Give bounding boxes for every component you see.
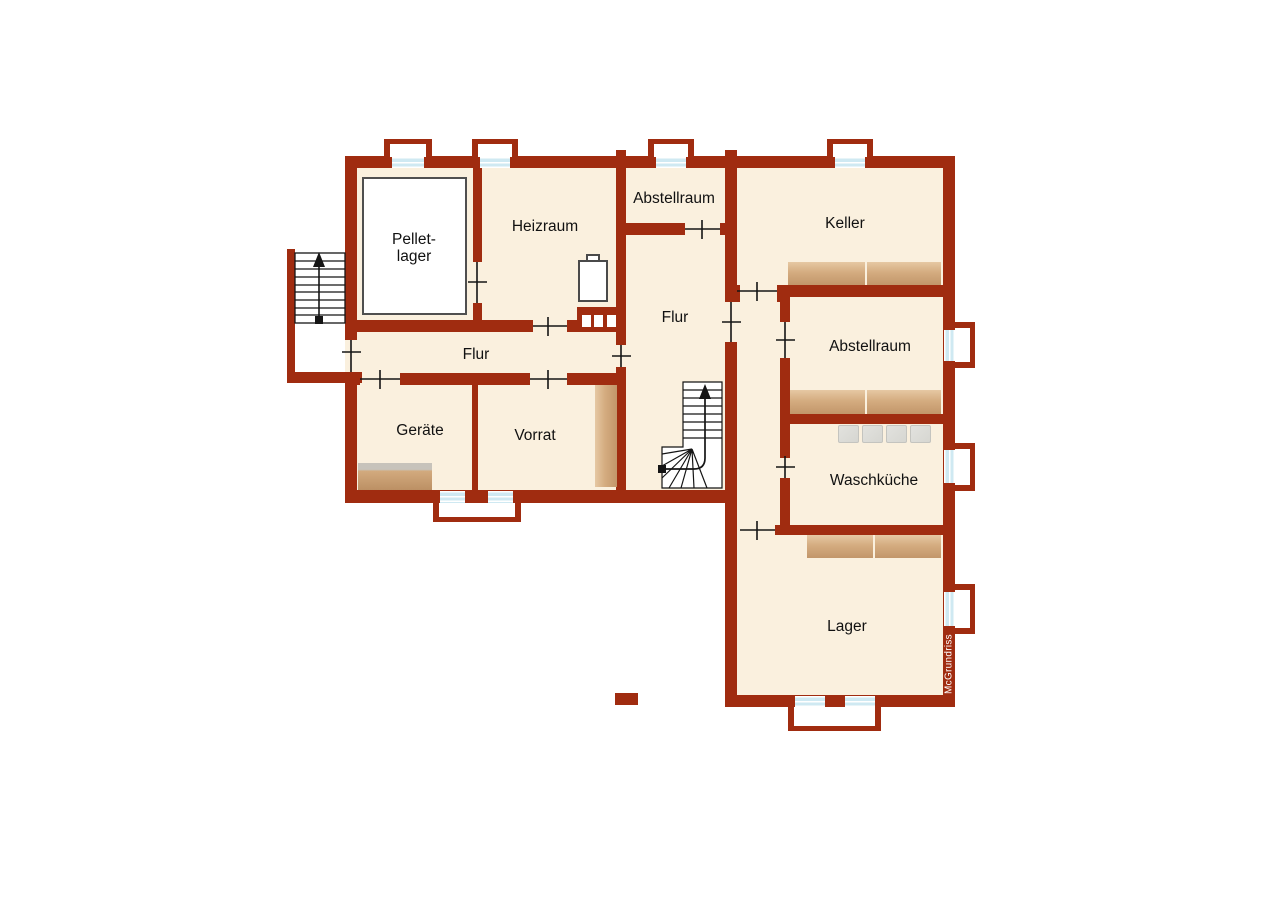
boiler	[578, 260, 608, 302]
window	[656, 157, 686, 168]
wall	[287, 249, 295, 383]
room-label-abstellraum-right: Abstellraum	[829, 338, 911, 356]
window-light-well	[648, 139, 694, 157]
window	[845, 696, 875, 707]
window	[440, 491, 465, 503]
window-light-well	[827, 139, 873, 157]
shelf	[867, 262, 941, 285]
room-label-abstellraum-top: Abstellraum	[633, 190, 715, 208]
washing-machine	[862, 425, 883, 443]
room-label-pelletlager-line1: Pellet-	[392, 231, 436, 248]
room-label-geraete: Geräte	[396, 422, 443, 440]
wall	[725, 695, 955, 707]
room-label-flur-center: Flur	[662, 309, 689, 327]
window-light-well	[955, 584, 975, 634]
shelf	[788, 262, 865, 285]
window	[835, 157, 865, 168]
wall	[720, 223, 737, 235]
wall	[780, 290, 790, 322]
wall	[345, 490, 737, 503]
room-label-pelletlager-line2: lager	[392, 248, 436, 265]
wall	[616, 367, 626, 490]
wall	[780, 358, 790, 458]
workbench	[358, 463, 432, 490]
room-label-flur-west: Flur	[463, 346, 490, 364]
window	[944, 330, 955, 361]
wall	[400, 373, 530, 385]
room-label-pelletlager: Pellet- lager	[392, 231, 436, 265]
shelf	[595, 385, 617, 487]
wall	[777, 285, 943, 297]
watermark-text: McGrundriss	[944, 634, 955, 694]
window	[944, 592, 955, 626]
wall	[725, 342, 737, 707]
room-label-heizraum: Heizraum	[512, 218, 578, 236]
window	[480, 157, 510, 168]
washing-machine	[886, 425, 907, 443]
wall	[473, 156, 482, 262]
room-label-waschkueche: Waschküche	[830, 472, 918, 490]
window	[488, 491, 513, 503]
wall	[725, 285, 740, 302]
window-light-well	[433, 503, 521, 522]
shelf	[807, 535, 873, 558]
shelf	[875, 535, 941, 558]
wall	[287, 372, 362, 383]
wall	[345, 372, 357, 503]
window-light-well	[955, 443, 975, 491]
room-label-keller: Keller	[825, 215, 865, 233]
exterior-staircase	[295, 252, 345, 324]
window	[795, 696, 825, 707]
wall	[567, 373, 626, 385]
shelf	[867, 390, 941, 414]
washing-machine	[838, 425, 859, 443]
room-label-vorrat: Vorrat	[514, 427, 555, 445]
floor-plan-basement: Pellet- lager Heizraum Abstellraum Kelle…	[0, 0, 1280, 905]
wall	[616, 223, 685, 235]
window-light-well	[384, 139, 432, 157]
wall	[780, 414, 943, 424]
window	[944, 450, 955, 483]
window	[392, 157, 424, 168]
manifold-valve	[594, 315, 603, 327]
manifold-valve	[607, 315, 616, 327]
room-label-lager: Lager	[827, 618, 867, 636]
window-light-well	[788, 707, 881, 731]
manifold-valve	[582, 315, 591, 327]
wall	[345, 156, 357, 340]
wall	[345, 320, 533, 332]
wall	[472, 385, 478, 490]
window-light-well	[955, 322, 975, 368]
shelf	[790, 390, 865, 414]
washing-machine	[910, 425, 931, 443]
chimney-block	[615, 693, 638, 705]
window-light-well	[472, 139, 518, 157]
wall	[775, 525, 943, 535]
